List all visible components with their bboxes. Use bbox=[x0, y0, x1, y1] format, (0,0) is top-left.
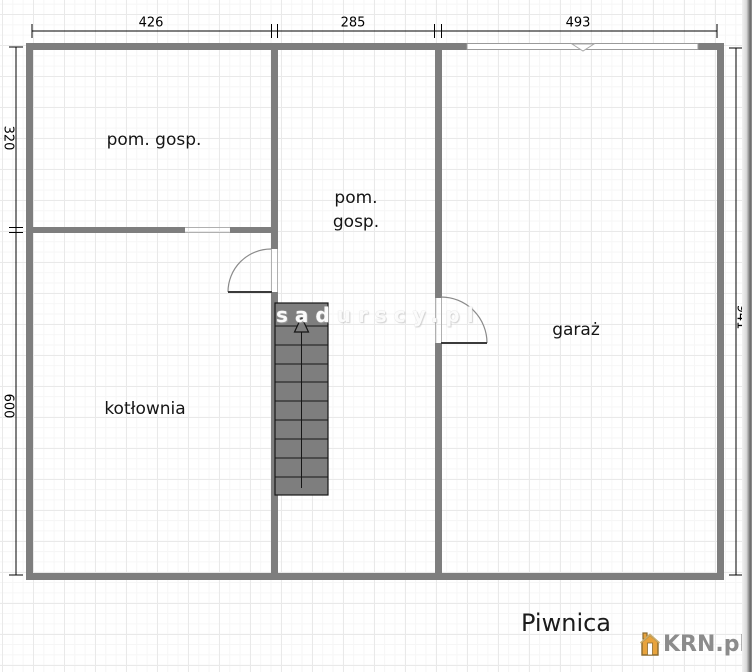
room-label-pom-gosp-2-line2: gosp. bbox=[333, 212, 379, 232]
krn-logo: KRN.pl bbox=[639, 631, 747, 657]
wall-top-left-segment bbox=[26, 43, 467, 50]
floor-plan-canvas: 426 285 493 320 600 941 pom. gosp. pom. … bbox=[0, 0, 752, 672]
krn-house-icon bbox=[639, 631, 661, 657]
room-label-garaz: garaż bbox=[552, 320, 600, 340]
wall-garage-lower bbox=[435, 343, 442, 573]
window-edge-strip bbox=[742, 0, 752, 672]
dimension-label-top-3: 493 bbox=[566, 16, 591, 31]
wall-left bbox=[26, 43, 33, 580]
wall-horizontal-right bbox=[230, 227, 271, 233]
door-kotlownia bbox=[228, 249, 272, 292]
room-label-kotlownia: kotłownia bbox=[104, 399, 185, 419]
garage-gate bbox=[467, 44, 698, 52]
dimension-label-left-1: 320 bbox=[1, 126, 16, 151]
floor-title: Piwnica bbox=[521, 609, 611, 637]
stairs bbox=[275, 303, 328, 495]
room-label-pom-gosp-2-line1: pom. bbox=[334, 188, 377, 208]
dimension-label-top-1: 426 bbox=[139, 16, 164, 31]
watermark-text: sadurscy.pl bbox=[276, 303, 481, 327]
door-swing-arc bbox=[228, 249, 271, 292]
wall-right bbox=[717, 43, 724, 580]
krn-logo-text: KRN.pl bbox=[663, 632, 747, 657]
wall-bottom bbox=[26, 573, 724, 580]
dimension-label-top-2: 285 bbox=[341, 16, 366, 31]
wall-horizontal-left bbox=[33, 227, 185, 233]
dimension-label-left-2: 600 bbox=[1, 394, 16, 419]
wall-garage-upper bbox=[435, 50, 442, 298]
wall-center-upper bbox=[271, 50, 278, 249]
floor-plan-drawing bbox=[0, 0, 752, 672]
dimension-lines bbox=[9, 24, 743, 575]
room-label-pom-gosp-1: pom. gosp. bbox=[107, 130, 202, 150]
